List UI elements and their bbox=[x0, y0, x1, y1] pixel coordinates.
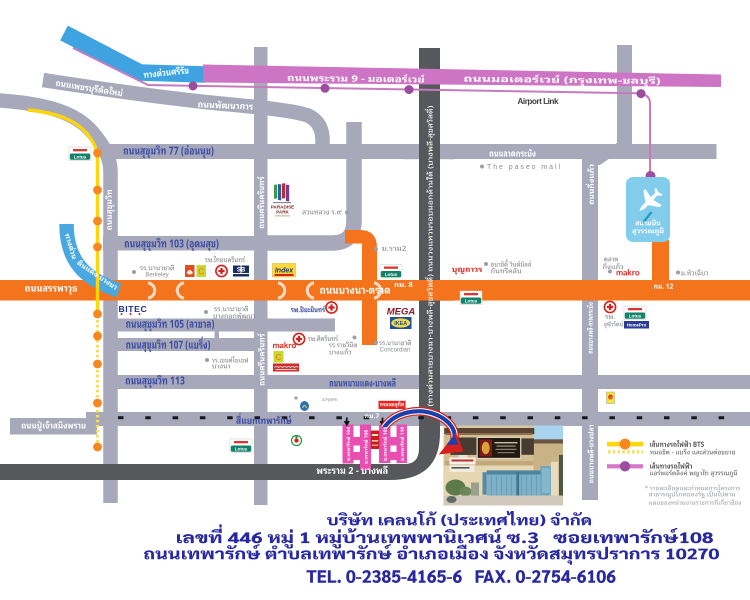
svg-text:IKEA: IKEA bbox=[394, 321, 407, 327]
svg-text:C: C bbox=[198, 267, 205, 277]
svg-text:Berkeley: Berkeley bbox=[145, 273, 168, 279]
svg-text:Airport Link: Airport Link bbox=[518, 97, 559, 106]
svg-text:MEGA: MEGA bbox=[387, 307, 416, 318]
svg-text:BITEC: BITEC bbox=[119, 304, 148, 314]
svg-text:C: C bbox=[275, 352, 281, 362]
svg-text:Concordian: Concordian bbox=[380, 348, 411, 354]
svg-text:Index: Index bbox=[275, 268, 294, 275]
svg-text:HomePro: HomePro bbox=[627, 323, 647, 328]
svg-text:PARK: PARK bbox=[276, 210, 289, 215]
svg-text:SB: SB bbox=[237, 268, 246, 274]
